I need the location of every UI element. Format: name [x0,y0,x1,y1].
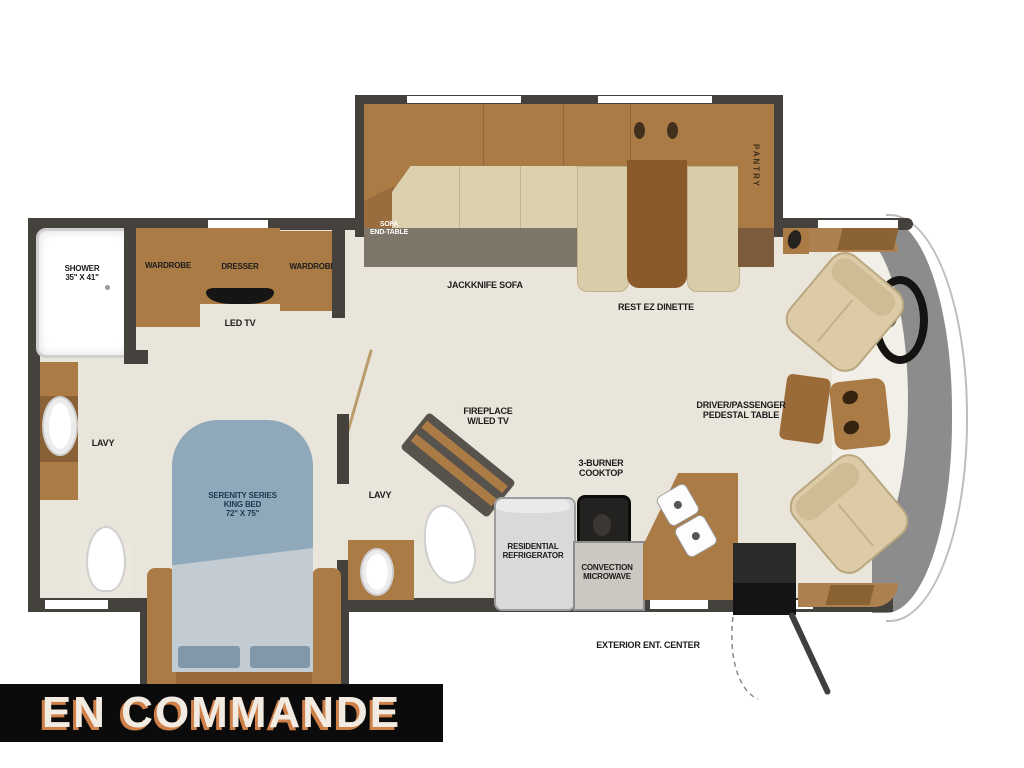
refrigerator-top [496,499,570,513]
sofa-seam [459,166,460,228]
sink-drain [690,531,701,542]
dashboard-bottom-inset [826,585,875,605]
rv-floorplan: PANTRY SOFAEND-TABLE SHOWER35" X 41" WAR… [0,0,1024,768]
dashboard-bottom [798,583,898,607]
slideout-window [407,96,521,103]
cup-holder [840,388,860,407]
pantry-base-cabinet [738,228,774,267]
wardrobe-left-label: WARDROBE [136,262,200,271]
wardrobe-left [136,228,200,327]
microwave-label: CONVECTIONMICROWAVE [573,564,641,582]
jackknife-sofa-label: JACKKNIFE SOFA [415,280,555,290]
led-tv [206,288,274,304]
sofa-end-table-label: SOFAEND-TABLE [364,221,414,237]
jackknife-sofa [392,166,578,228]
cabinet-knob [634,122,645,139]
slideout-wall-right [774,95,783,237]
driver-seat-seam [817,299,853,342]
king-bed: SERENITY SERIESKING BED72" X 75" [172,420,313,672]
cup-holder [841,418,861,437]
dinette-table [627,160,687,288]
pantry-label: PANTRY [752,144,761,188]
status-banner: EN COMMANDE [0,684,443,742]
lavy-rear-label: LAVY [80,438,126,448]
burner [593,514,611,536]
refrigerator-label: RESIDENTIALREFRIGERATOR [496,543,570,561]
pedestal-table-right [829,377,892,450]
window-top-front [818,220,898,228]
cooktop-label: 3-BURNERCOOKTOP [568,458,634,478]
pedestal-table-label: DRIVER/PASSENGERPEDESTAL TABLE [691,400,791,420]
shower-drain [105,285,110,290]
dinette-bench-left [577,166,629,292]
dinette-bench-right [687,166,740,292]
shower: SHOWER35" X 41" [36,228,132,358]
fireplace-label: FIREPLACEW/LED TV [436,406,540,426]
bed-pillow [250,646,310,668]
sink-drain [672,499,683,510]
cabinet-knob [667,122,678,139]
exterior-ent-center-label: EXTERIOR ENT. CENTER [585,640,711,650]
entry-step-upper [733,543,796,583]
entry-door-swing-arc [700,598,800,710]
passenger-seat-seam [838,504,874,547]
shower-wall-stub [124,350,148,364]
rest-ez-dinette-label: REST EZ DINETTE [586,302,726,312]
shower-label: SHOWER35" X 41" [39,265,125,283]
cabinet-seam [483,104,484,168]
bed-pillow [178,646,240,668]
mid-sink [360,548,394,596]
refrigerator: RESIDENTIALREFRIGERATOR [494,497,576,611]
rear-sink [42,396,78,456]
bedroom-wall [332,218,345,318]
pantry-cabinet: PANTRY [738,104,774,228]
dashboard-top-inset [837,228,898,250]
dresser-label: DRESSER [200,263,280,272]
status-banner-text: EN COMMANDE [42,688,401,738]
shower-wall [124,218,136,364]
led-tv-label: LED TV [206,318,274,328]
window-top-rear [208,220,268,228]
sofa-seam [520,166,521,228]
slideout-window [598,96,712,103]
rear-toilet [86,526,126,592]
cabinet-seam [563,104,564,168]
window-bottom-rear [45,600,108,609]
slideout-wall-left [355,95,364,237]
lavy-mid-label: LAVY [350,490,410,500]
hall-wall-stub [337,414,349,484]
king-bed-label: SERENITY SERIESKING BED72" X 75" [172,492,313,519]
nightstand-right [312,568,341,686]
